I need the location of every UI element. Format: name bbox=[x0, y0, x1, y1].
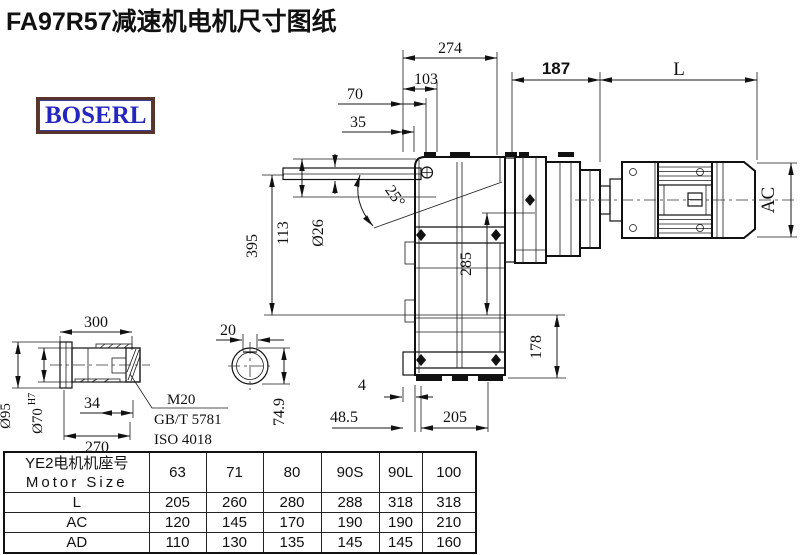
bolt-diamond-icon bbox=[525, 194, 535, 206]
cell-AC-80: 170 bbox=[263, 513, 321, 533]
row-label-L: L bbox=[4, 493, 149, 513]
table-header-label: YE2电机机座号 Motor Size bbox=[4, 452, 149, 493]
cell-AD-90s: 145 bbox=[321, 533, 379, 554]
mid-dimensions: 285 178 bbox=[458, 213, 566, 378]
size-column-90l: 90L bbox=[379, 452, 422, 493]
dim-70-tolerance: H7 bbox=[27, 393, 38, 405]
shaft-section-detail: 20 74.9 bbox=[216, 322, 290, 426]
gearbox-housing bbox=[283, 152, 517, 381]
cell-AC-71: 145 bbox=[206, 513, 263, 533]
bolt-diamond-icon bbox=[416, 229, 426, 241]
cell-L-90s: 288 bbox=[321, 493, 379, 513]
dim-178: 178 bbox=[528, 335, 545, 359]
dim-35: 35 bbox=[350, 114, 366, 131]
table-header-en: Motor Size bbox=[5, 473, 149, 492]
table-row-AD: AD 110 130 135 145 145 160 bbox=[4, 533, 476, 554]
cell-AC-63: 120 bbox=[149, 513, 206, 533]
cell-L-63: 205 bbox=[149, 493, 206, 513]
cell-AD-80: 135 bbox=[263, 533, 321, 554]
dim-25deg: 25° bbox=[381, 182, 408, 210]
label-m20: M20 bbox=[167, 392, 195, 408]
bolt-diamond-icon bbox=[416, 354, 426, 366]
dim-300: 300 bbox=[84, 314, 108, 331]
dim-395: 395 bbox=[244, 234, 261, 258]
dim-48-5: 48.5 bbox=[330, 409, 358, 426]
bolt-circle-icon bbox=[630, 169, 637, 176]
size-column-71: 71 bbox=[206, 452, 263, 493]
top-dimensions: 274 103 70 35 bbox=[338, 40, 497, 155]
bottom-dimensions: 4 48.5 205 bbox=[330, 377, 488, 432]
label-gbt-5781: GB/T 5781 bbox=[154, 412, 222, 428]
label-iso-4018: ISO 4018 bbox=[154, 432, 212, 448]
dim-74-9: 74.9 bbox=[271, 398, 288, 426]
dim-103: 103 bbox=[414, 71, 438, 88]
row-label-AC: AC bbox=[4, 513, 149, 533]
size-column-90s: 90S bbox=[321, 452, 379, 493]
row-label-AD: AD bbox=[4, 533, 149, 554]
bolt-diamond-icon bbox=[491, 354, 501, 366]
table-row-L: L 205 260 280 288 318 318 bbox=[4, 493, 476, 513]
cell-AD-71: 130 bbox=[206, 533, 263, 554]
bolt-circle-icon bbox=[697, 225, 704, 232]
shaft-detail: 300 34 270 bbox=[0, 314, 228, 456]
dim-70-shaft: Ø70 bbox=[30, 408, 46, 434]
dim-187: 187 bbox=[542, 59, 570, 78]
table-header-cn: YE2电机机座号 bbox=[5, 454, 149, 473]
cell-AD-90l: 145 bbox=[379, 533, 422, 554]
dim-274: 274 bbox=[438, 40, 462, 57]
bolt-circle-icon bbox=[697, 169, 704, 176]
dim-26: Ø26 bbox=[310, 219, 327, 247]
size-column-100: 100 bbox=[422, 452, 476, 493]
motor-assembly bbox=[515, 152, 795, 263]
cell-L-71: 260 bbox=[206, 493, 263, 513]
dim-285: 285 bbox=[458, 252, 475, 276]
cell-L-100: 318 bbox=[422, 493, 476, 513]
page: FA97R57减速机电机尺寸图纸 BOSERL 274 103 70 bbox=[0, 0, 800, 555]
dim-113: 113 bbox=[275, 221, 292, 244]
cell-AD-100: 160 bbox=[422, 533, 476, 554]
bolt-diamond-icon bbox=[491, 229, 501, 241]
cell-L-90l: 318 bbox=[379, 493, 422, 513]
table-header-row: YE2电机机座号 Motor Size 63 71 80 90S 90L 100 bbox=[4, 452, 476, 493]
size-column-80: 80 bbox=[263, 452, 321, 493]
mounting-flange bbox=[505, 158, 515, 262]
cell-AC-100: 210 bbox=[422, 513, 476, 533]
left-dimensions: 395 113 Ø26 25° bbox=[244, 154, 565, 315]
cell-AC-90l: 190 bbox=[379, 513, 422, 533]
dim-20: 20 bbox=[220, 322, 236, 339]
dim-95: Ø95 bbox=[0, 403, 14, 429]
cell-AC-90s: 190 bbox=[321, 513, 379, 533]
cell-L-80: 280 bbox=[263, 493, 321, 513]
table-row-AC: AC 120 145 170 190 190 210 bbox=[4, 513, 476, 533]
bolt-circle-icon bbox=[630, 225, 637, 232]
dim-34: 34 bbox=[84, 395, 100, 412]
dim-4: 4 bbox=[358, 377, 366, 394]
dim-L: L bbox=[673, 59, 685, 80]
size-column-63: 63 bbox=[149, 452, 206, 493]
dim-205: 205 bbox=[443, 409, 467, 426]
motor-size-table: YE2电机机座号 Motor Size 63 71 80 90S 90L 100… bbox=[3, 451, 477, 554]
dim-70: 70 bbox=[347, 86, 363, 103]
cell-AD-63: 110 bbox=[149, 533, 206, 554]
tapped-hole bbox=[112, 358, 126, 373]
